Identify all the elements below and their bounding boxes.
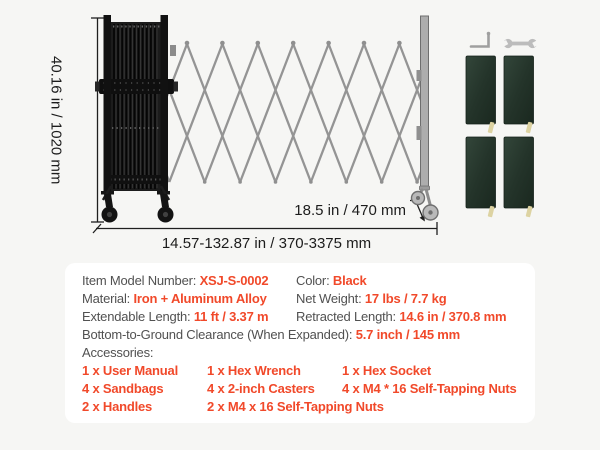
net-weight-value: 17 lbs / 7.7 kg xyxy=(365,291,447,306)
depth-dimension-label: 18.5 in / 470 mm xyxy=(256,202,406,219)
product-infographic: 40.16 in / 1020 mm 14.57-132.87 in / 370… xyxy=(0,0,600,450)
height-dimension-label: 40.16 in / 1020 mm xyxy=(44,18,68,222)
accessory-item: 4 x 2-inch Casters xyxy=(207,380,315,398)
accessory-item: 4 x Sandbags xyxy=(82,380,163,398)
width-dimension-label: 14.57-132.87 in / 370-3375 mm xyxy=(96,235,437,252)
model-label: Item Model Number: xyxy=(82,273,200,288)
spec-row-model-color: Item Model Number: XSJ-S-0002 Color: Bla… xyxy=(65,272,535,290)
accessory-item: 1 x User Manual xyxy=(82,362,178,380)
accessories-heading: Accessories: xyxy=(65,344,535,362)
accessories-label: Accessories: xyxy=(82,344,153,362)
clearance-value: 5.7 inch / 145 mm xyxy=(356,327,460,342)
accessories-row-3: 2 x Handles 2 x M4 x 16 Self-Tapping Nut… xyxy=(65,398,535,416)
accessory-item: 2 x M4 x 16 Self-Tapping Nuts xyxy=(207,398,384,416)
accessory-item: 1 x Hex Socket xyxy=(342,362,431,380)
accessory-item: 1 x Hex Wrench xyxy=(207,362,301,380)
end-post-graphic xyxy=(412,16,439,220)
material-label: Material: xyxy=(82,291,133,306)
spec-row-clearance: Bottom-to-Ground Clearance (When Expande… xyxy=(65,326,535,344)
extendable-length-label: Extendable Length: xyxy=(82,309,194,324)
color-value: Black xyxy=(333,273,367,288)
color-label: Color: xyxy=(296,273,333,288)
hex-wrench-icon xyxy=(471,32,490,47)
retracted-length-label: Retracted Length: xyxy=(296,309,399,324)
model-value: XSJ-S-0002 xyxy=(200,273,269,288)
net-weight-label: Net Weight: xyxy=(296,291,365,306)
accessories-row-2: 4 x Sandbags 4 x 2-inch Casters 4 x M4 *… xyxy=(65,380,535,398)
retracted-length-value: 14.6 in / 370.8 mm xyxy=(399,309,506,324)
clearance-label: Bottom-to-Ground Clearance (When Expande… xyxy=(82,327,356,342)
accessory-item: 4 x M4 * 16 Self-Tapping Nuts xyxy=(342,380,517,398)
wrench-icon xyxy=(501,39,540,48)
extendable-length-value: 11 ft / 3.37 m xyxy=(194,309,269,324)
accessory-item: 2 x Handles xyxy=(82,398,152,416)
sandbags-image xyxy=(466,56,534,217)
spec-row-lengths: Extendable Length: 11 ft / 3.37 m Retrac… xyxy=(65,308,535,326)
retracted-gate-graphic xyxy=(95,15,178,223)
material-value: Iron + Aluminum Alloy xyxy=(133,291,266,306)
accessories-row-1: 1 x User Manual 1 x Hex Wrench 1 x Hex S… xyxy=(65,362,535,380)
spec-row-material-weight: Material: Iron + Aluminum Alloy Net Weig… xyxy=(65,290,535,308)
spec-card: Item Model Number: XSJ-S-0002 Color: Bla… xyxy=(65,263,535,423)
